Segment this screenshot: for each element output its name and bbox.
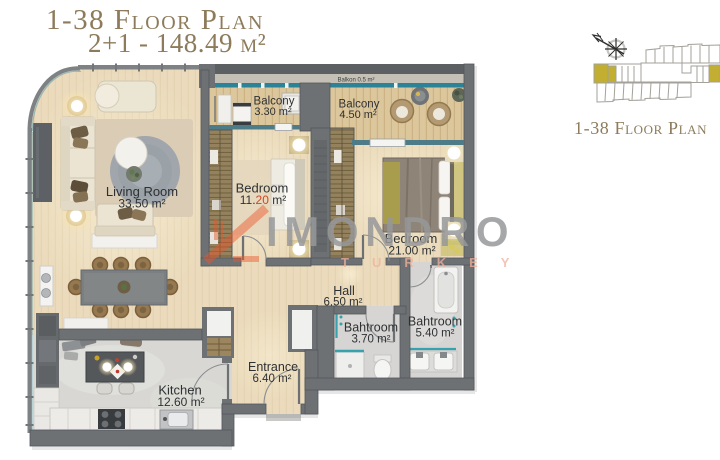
svg-text:Bahtroom: Bahtroom: [344, 321, 398, 335]
svg-text:2+1 - 148.49 m²: 2+1 - 148.49 m²: [88, 28, 266, 58]
svg-text:3.70 m²: 3.70 m²: [352, 334, 391, 346]
svg-text:Entrance: Entrance: [248, 360, 298, 374]
svg-text:4.50 m²: 4.50 m²: [339, 109, 377, 121]
svg-text:5.40 m²: 5.40 m²: [416, 328, 455, 340]
svg-text:3.30 m²: 3.30 m²: [254, 106, 292, 118]
svg-text:IMONDRO: IMONDRO: [266, 208, 515, 255]
svg-text:6.40 m²: 6.40 m²: [253, 373, 292, 385]
svg-text:6.50 m²: 6.50 m²: [324, 297, 363, 309]
svg-text:1-38 Floor Plan: 1-38 Floor Plan: [574, 118, 707, 138]
svg-text:33.50 m²: 33.50 m²: [118, 197, 165, 211]
svg-text:Bahtroom: Bahtroom: [408, 315, 462, 329]
svg-text:12.60 m²: 12.60 m²: [157, 395, 204, 409]
svg-text:Balkon 0.5 m²: Balkon 0.5 m²: [337, 78, 374, 84]
svg-text:TURKEY: TURKEY: [341, 255, 532, 270]
